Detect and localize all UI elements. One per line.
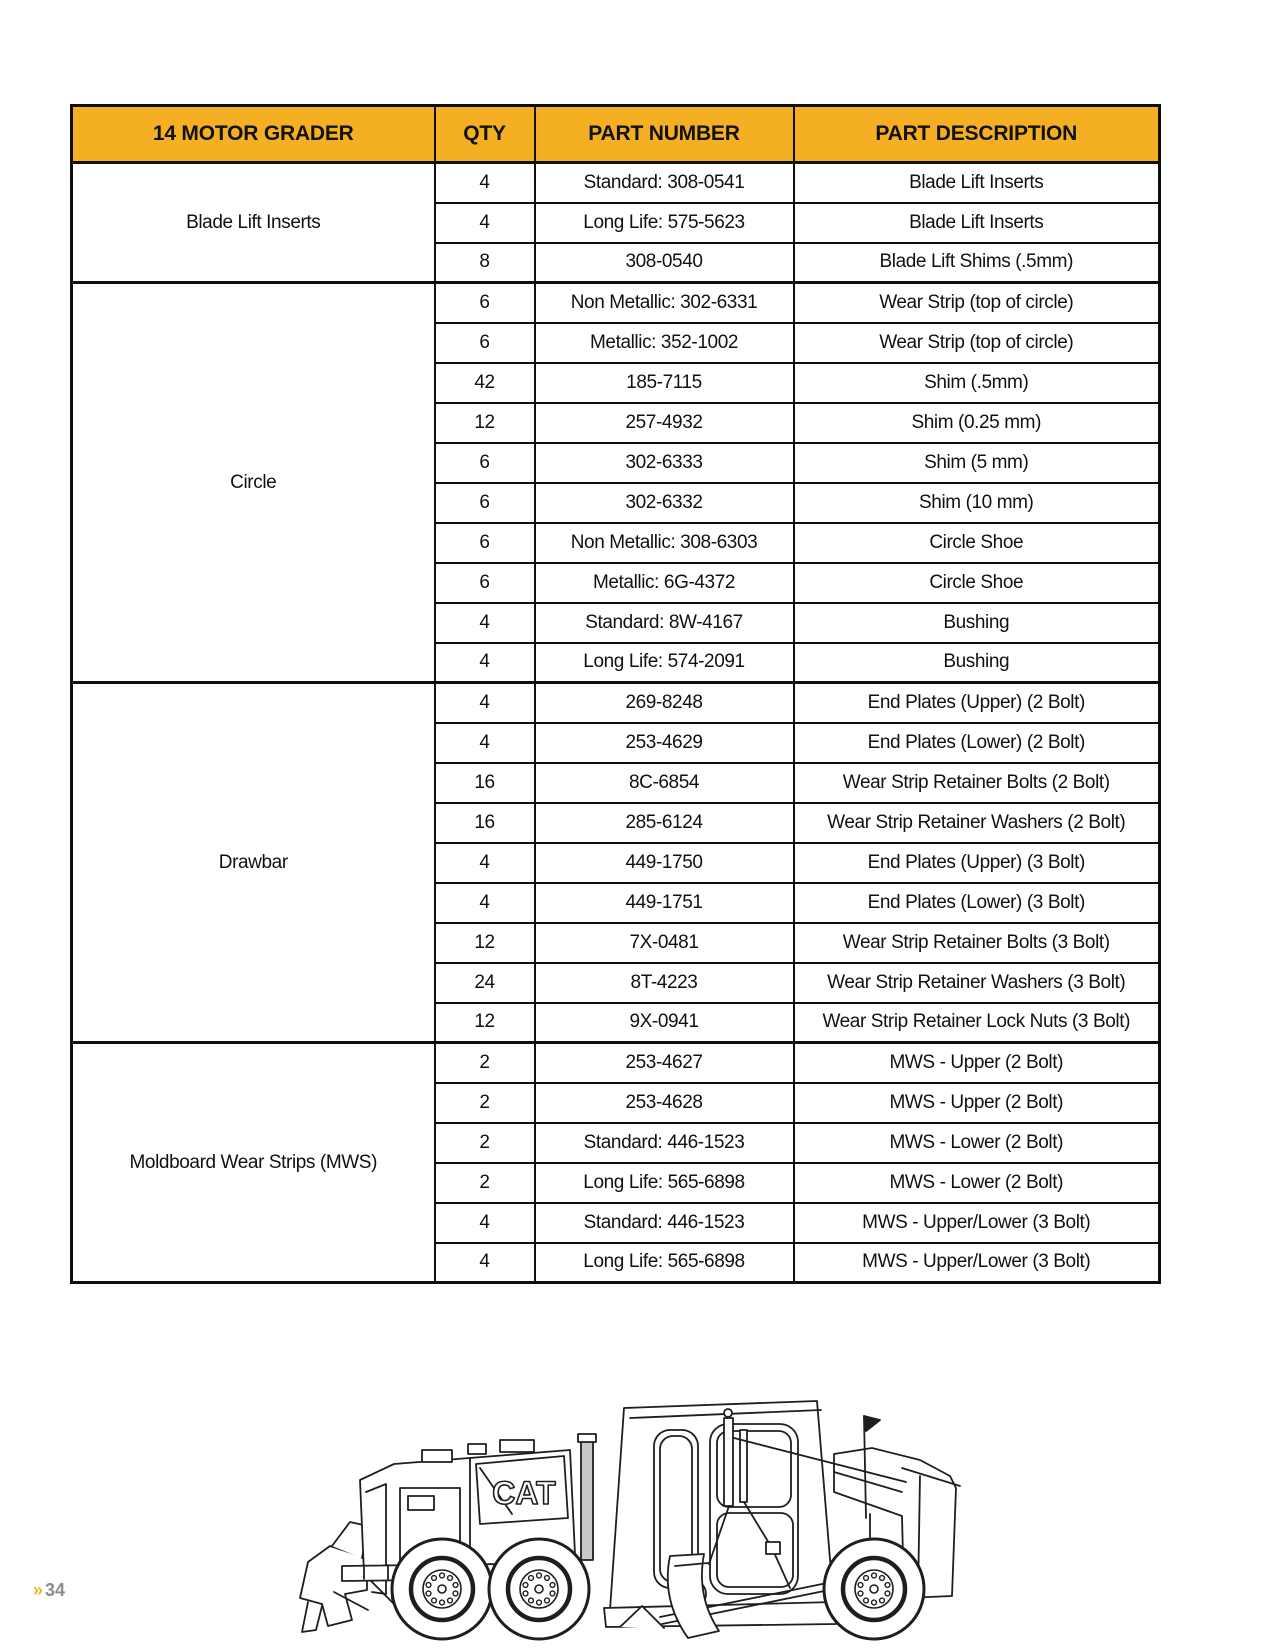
part-description-cell: Blade Lift Inserts — [794, 203, 1160, 243]
table-row: Circle6Non Metallic: 302-6331Wear Strip … — [72, 283, 1160, 323]
page-number-marker: » — [33, 1580, 43, 1600]
part-number-cell: Non Metallic: 302-6331 — [535, 283, 794, 323]
part-description-cell: Circle Shoe — [794, 523, 1160, 563]
qty-cell: 16 — [435, 803, 535, 843]
part-number-cell: Standard: 308-0541 — [535, 163, 794, 203]
col-header-part-number: PART NUMBER — [535, 106, 794, 163]
part-number-cell: 9X-0941 — [535, 1003, 794, 1043]
front-wheel — [824, 1539, 924, 1639]
part-description-cell: MWS - Lower (2 Bolt) — [794, 1123, 1160, 1163]
part-description-cell: Wear Strip (top of circle) — [794, 283, 1160, 323]
part-number-cell: 8C-6854 — [535, 763, 794, 803]
qty-cell: 4 — [435, 643, 535, 683]
part-description-cell: Blade Lift Inserts — [794, 163, 1160, 203]
qty-cell: 4 — [435, 603, 535, 643]
rear-tandem-wheel-2 — [489, 1539, 589, 1639]
qty-cell: 6 — [435, 563, 535, 603]
motor-grader-illustration: CAT — [272, 1396, 996, 1648]
rear-tandem-wheel-1 — [392, 1539, 492, 1639]
catalog-page: 14 MOTOR GRADER QTY PART NUMBER PART DES… — [0, 0, 1275, 1650]
part-description-cell: Shim (5 mm) — [794, 443, 1160, 483]
part-number-cell: Long Life: 575-5623 — [535, 203, 794, 243]
qty-cell: 2 — [435, 1043, 535, 1083]
qty-cell: 6 — [435, 523, 535, 563]
qty-cell: 16 — [435, 763, 535, 803]
part-description-cell: Wear Strip (top of circle) — [794, 323, 1160, 363]
qty-cell: 4 — [435, 1203, 535, 1243]
parts-table-container: 14 MOTOR GRADER QTY PART NUMBER PART DES… — [70, 104, 1161, 1284]
part-number-cell: 253-4628 — [535, 1083, 794, 1123]
part-number-cell: 253-4627 — [535, 1043, 794, 1083]
part-description-cell: Shim (0.25 mm) — [794, 403, 1160, 443]
part-description-cell: MWS - Lower (2 Bolt) — [794, 1163, 1160, 1203]
col-header-model: 14 MOTOR GRADER — [72, 106, 435, 163]
qty-cell: 4 — [435, 203, 535, 243]
qty-cell: 24 — [435, 963, 535, 1003]
page-number-value: 34 — [45, 1580, 65, 1600]
part-number-cell: Long Life: 574-2091 — [535, 643, 794, 683]
part-number-cell: 185-7115 — [535, 363, 794, 403]
part-number-cell: Long Life: 565-6898 — [535, 1163, 794, 1203]
qty-cell: 2 — [435, 1083, 535, 1123]
part-description-cell: End Plates (Upper) (2 Bolt) — [794, 683, 1160, 723]
qty-cell: 8 — [435, 243, 535, 283]
part-description-cell: Wear Strip Retainer Bolts (3 Bolt) — [794, 923, 1160, 963]
part-number-cell: 449-1751 — [535, 883, 794, 923]
part-description-cell: Blade Lift Shims (.5mm) — [794, 243, 1160, 283]
part-number-cell: 285-6124 — [535, 803, 794, 843]
part-description-cell: MWS - Upper (2 Bolt) — [794, 1043, 1160, 1083]
qty-cell: 2 — [435, 1163, 535, 1203]
page-number: »34 — [33, 1580, 65, 1601]
col-header-qty: QTY — [435, 106, 535, 163]
parts-table-rows: Blade Lift Inserts4Standard: 308-0541Bla… — [72, 163, 1160, 1283]
qty-cell: 12 — [435, 1003, 535, 1043]
part-number-cell: Long Life: 565-6898 — [535, 1243, 794, 1283]
table-row: Moldboard Wear Strips (MWS)2253-4627MWS … — [72, 1043, 1160, 1083]
group-label-cell: Drawbar — [72, 683, 435, 1043]
part-number-cell: Metallic: 352-1002 — [535, 323, 794, 363]
qty-cell: 12 — [435, 403, 535, 443]
part-number-cell: 449-1750 — [535, 843, 794, 883]
qty-cell: 42 — [435, 363, 535, 403]
part-number-cell: 253-4629 — [535, 723, 794, 763]
part-description-cell: End Plates (Lower) (2 Bolt) — [794, 723, 1160, 763]
group-label-cell: Moldboard Wear Strips (MWS) — [72, 1043, 435, 1283]
qty-cell: 12 — [435, 923, 535, 963]
part-description-cell: Bushing — [794, 643, 1160, 683]
part-description-cell: Shim (.5mm) — [794, 363, 1160, 403]
part-description-cell: Wear Strip Retainer Washers (2 Bolt) — [794, 803, 1160, 843]
header-row: 14 MOTOR GRADER QTY PART NUMBER PART DES… — [72, 106, 1160, 163]
qty-cell: 4 — [435, 883, 535, 923]
qty-cell: 6 — [435, 443, 535, 483]
part-description-cell: Wear Strip Retainer Lock Nuts (3 Bolt) — [794, 1003, 1160, 1043]
part-number-cell: 8T-4223 — [535, 963, 794, 1003]
part-number-cell: Non Metallic: 308-6303 — [535, 523, 794, 563]
group-label-cell: Circle — [72, 283, 435, 683]
part-number-cell: Standard: 8W-4167 — [535, 603, 794, 643]
part-number-cell: 302-6333 — [535, 443, 794, 483]
qty-cell: 6 — [435, 483, 535, 523]
qty-cell: 4 — [435, 843, 535, 883]
part-number-cell: Metallic: 6G-4372 — [535, 563, 794, 603]
qty-cell: 4 — [435, 683, 535, 723]
part-description-cell: MWS - Upper/Lower (3 Bolt) — [794, 1203, 1160, 1243]
part-description-cell: Wear Strip Retainer Bolts (2 Bolt) — [794, 763, 1160, 803]
part-number-cell: 302-6332 — [535, 483, 794, 523]
part-description-cell: MWS - Upper/Lower (3 Bolt) — [794, 1243, 1160, 1283]
parts-table-header: 14 MOTOR GRADER QTY PART NUMBER PART DES… — [72, 106, 1160, 163]
qty-cell: 4 — [435, 723, 535, 763]
part-number-cell: 257-4932 — [535, 403, 794, 443]
qty-cell: 2 — [435, 1123, 535, 1163]
col-header-part-description: PART DESCRIPTION — [794, 106, 1160, 163]
part-description-cell: Bushing — [794, 603, 1160, 643]
qty-cell: 4 — [435, 163, 535, 203]
part-description-cell: MWS - Upper (2 Bolt) — [794, 1083, 1160, 1123]
table-row: Blade Lift Inserts4Standard: 308-0541Bla… — [72, 163, 1160, 203]
part-number-cell: Standard: 446-1523 — [535, 1203, 794, 1243]
part-description-cell: End Plates (Upper) (3 Bolt) — [794, 843, 1160, 883]
part-number-cell: 308-0540 — [535, 243, 794, 283]
part-description-cell: Wear Strip Retainer Washers (3 Bolt) — [794, 963, 1160, 1003]
group-label-cell: Blade Lift Inserts — [72, 163, 435, 283]
part-description-cell: End Plates (Lower) (3 Bolt) — [794, 883, 1160, 923]
part-description-cell: Shim (10 mm) — [794, 483, 1160, 523]
table-row: Drawbar4269-8248End Plates (Upper) (2 Bo… — [72, 683, 1160, 723]
part-number-cell: Standard: 446-1523 — [535, 1123, 794, 1163]
qty-cell: 6 — [435, 323, 535, 363]
qty-cell: 4 — [435, 1243, 535, 1283]
qty-cell: 6 — [435, 283, 535, 323]
parts-table: 14 MOTOR GRADER QTY PART NUMBER PART DES… — [70, 104, 1161, 1284]
part-description-cell: Circle Shoe — [794, 563, 1160, 603]
part-number-cell: 269-8248 — [535, 683, 794, 723]
part-number-cell: 7X-0481 — [535, 923, 794, 963]
cat-logo: CAT — [492, 1475, 556, 1511]
